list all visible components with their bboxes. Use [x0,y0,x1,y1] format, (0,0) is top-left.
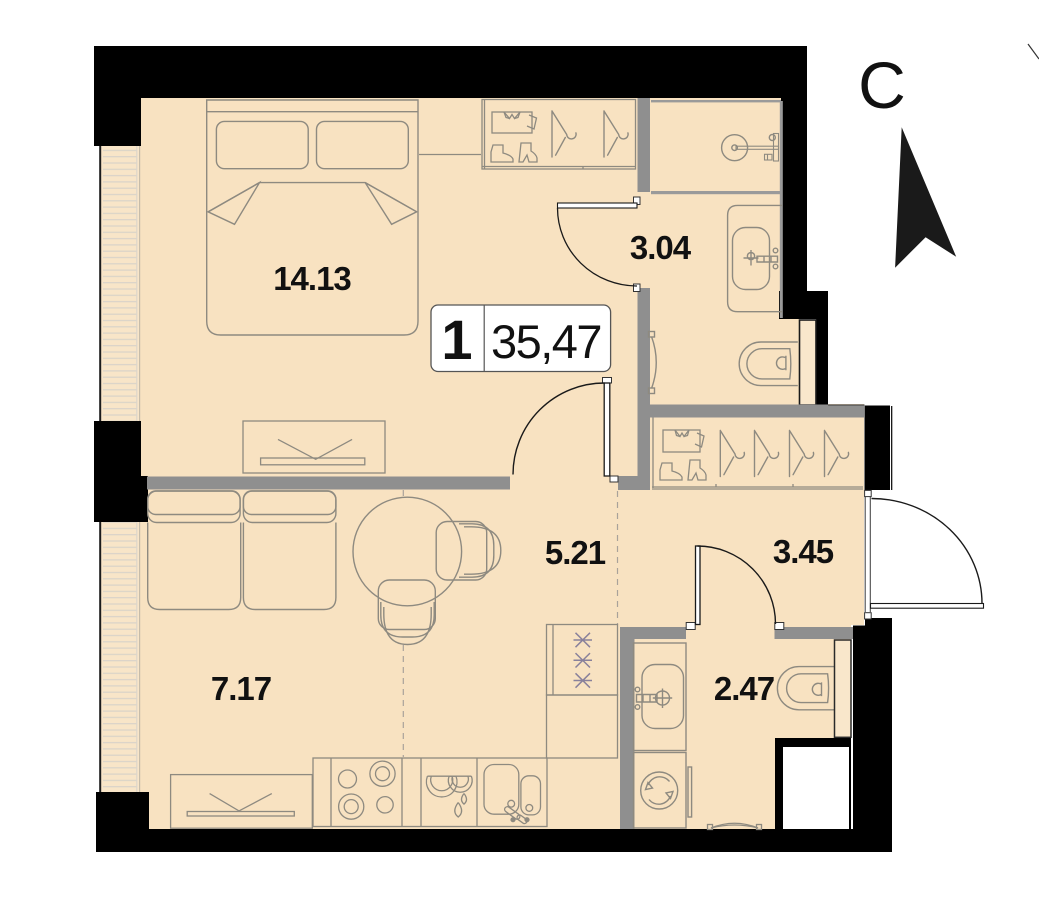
svg-text:С: С [858,48,906,122]
svg-text:14.13: 14.13 [273,260,351,297]
svg-text:2.47: 2.47 [714,670,774,707]
svg-text:7.17: 7.17 [211,670,271,707]
svg-text:35,47: 35,47 [491,315,601,368]
svg-text:3.04: 3.04 [630,229,692,266]
svg-text:5.21: 5.21 [545,534,606,571]
svg-text:3.45: 3.45 [773,533,834,570]
svg-text:1: 1 [441,308,472,371]
